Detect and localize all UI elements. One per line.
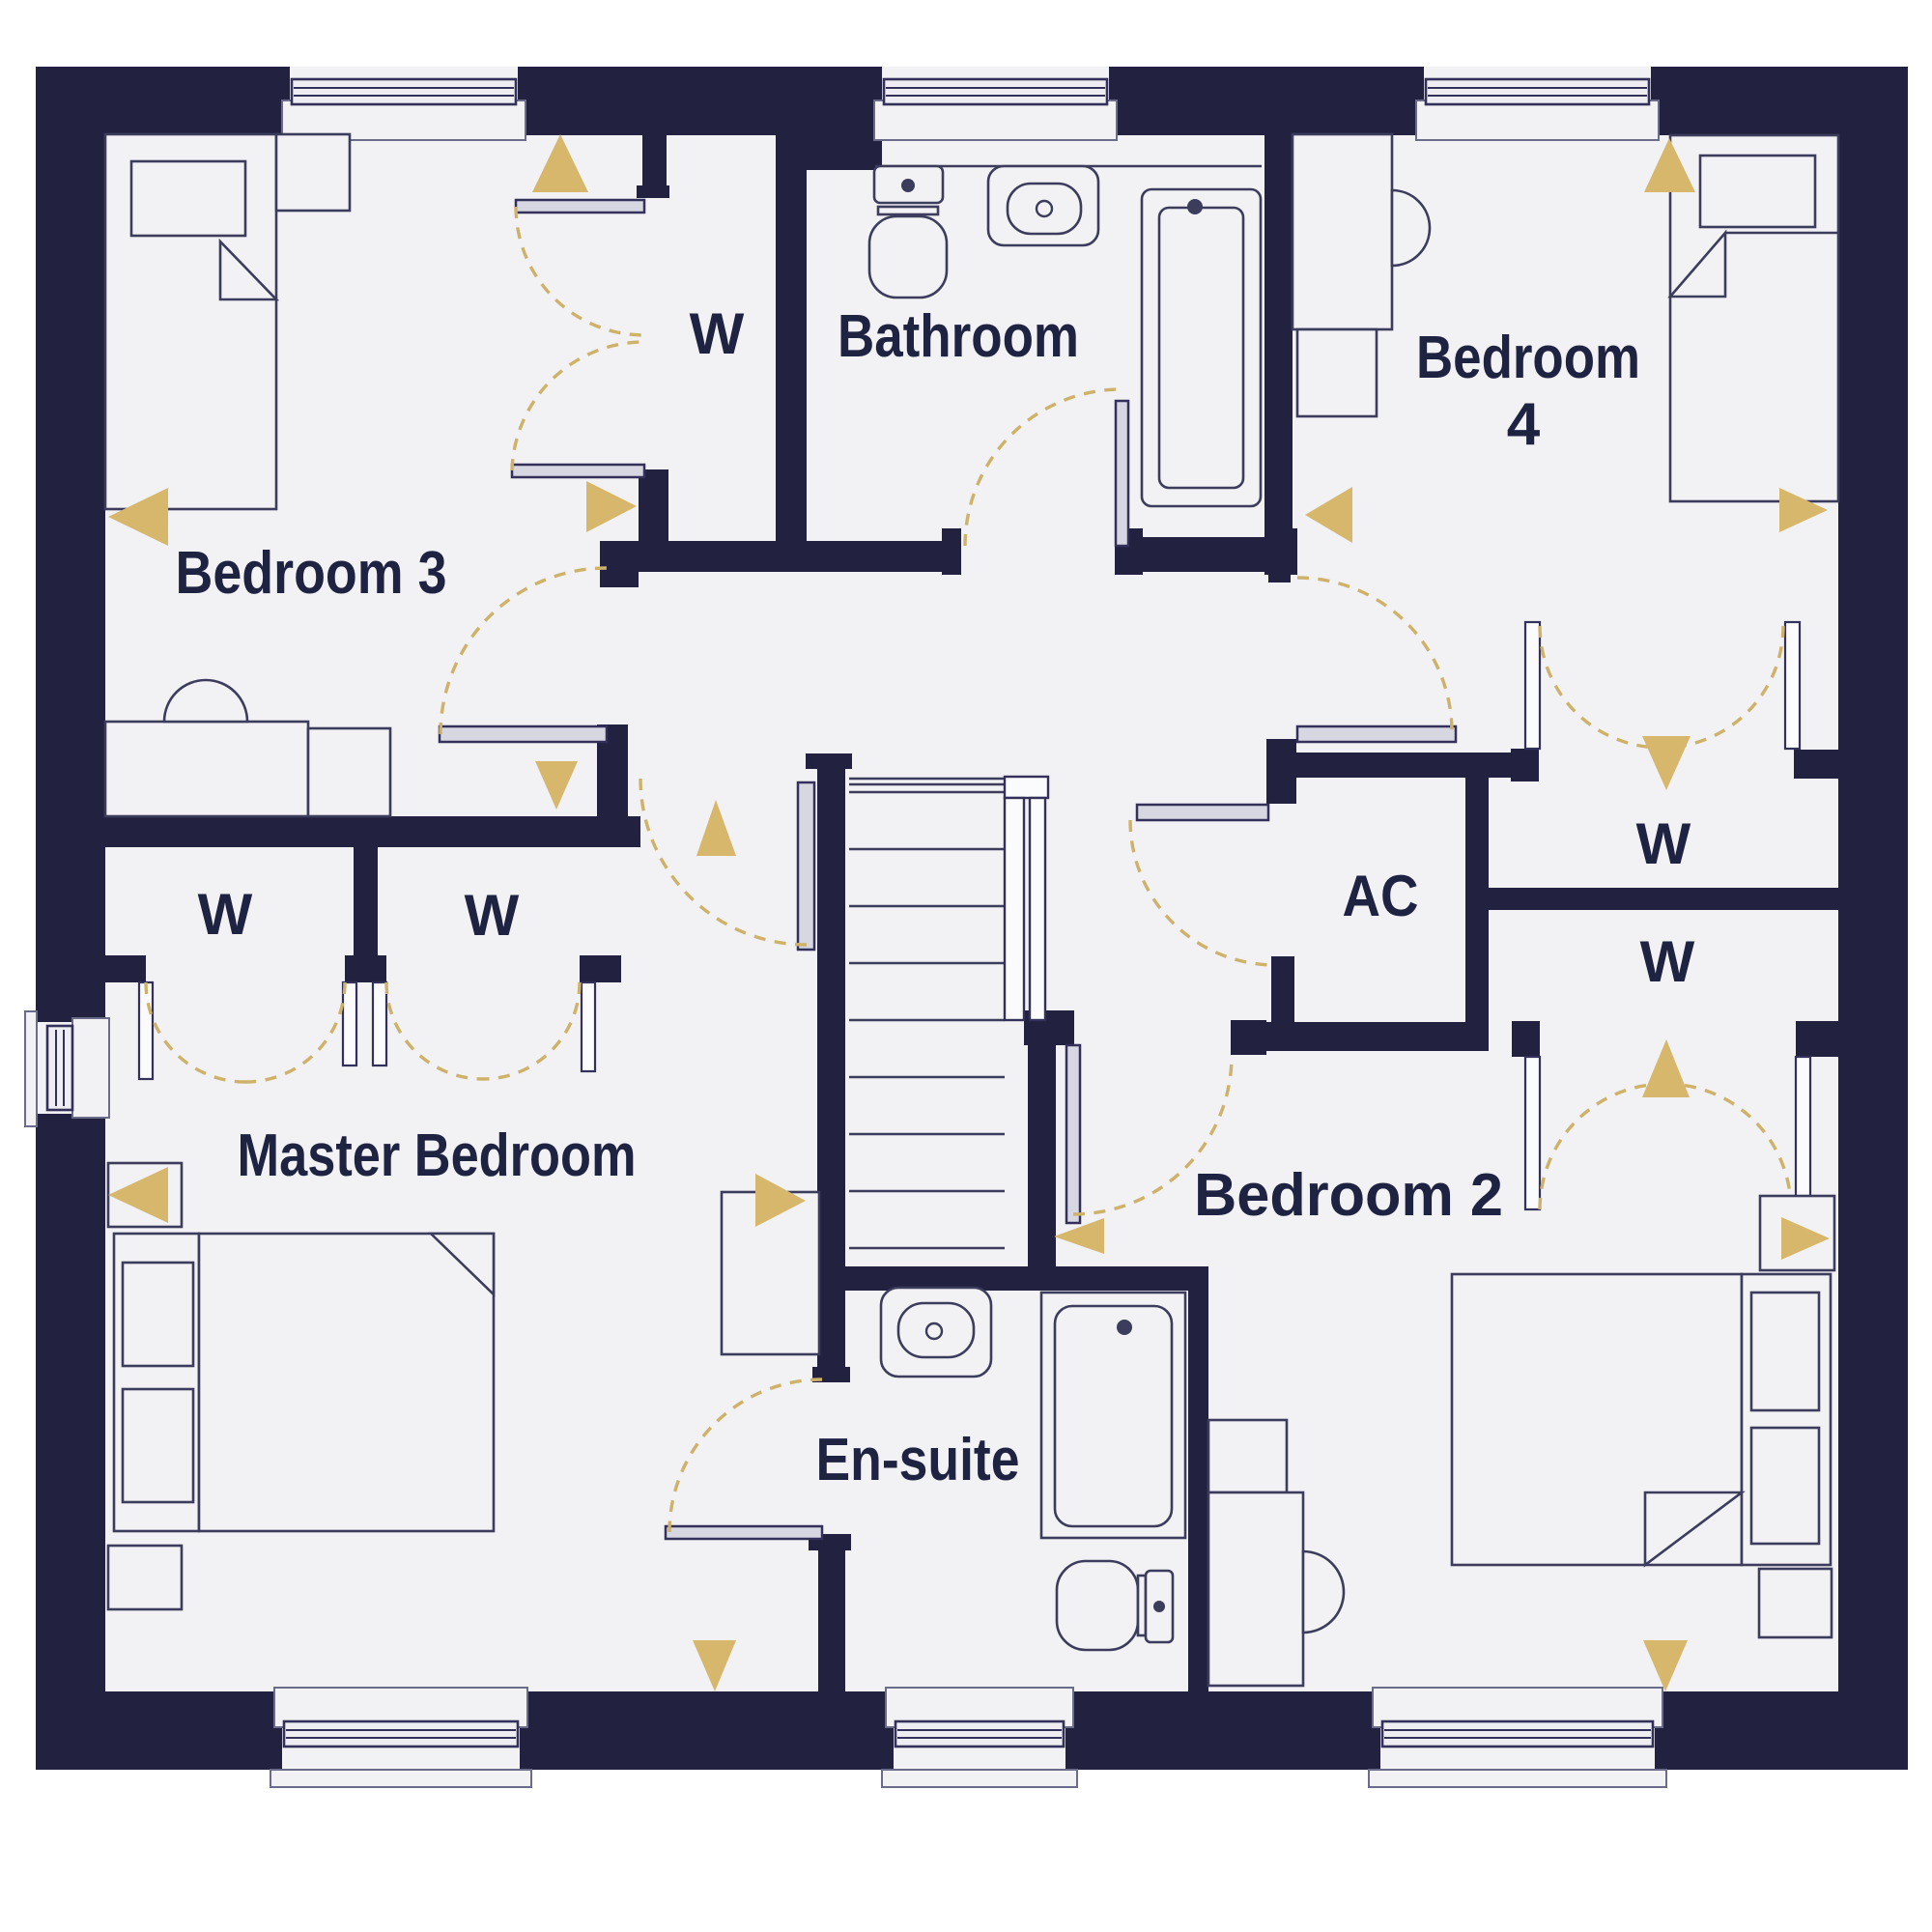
svg-text:Bedroom 3: Bedroom 3 [176,540,447,607]
svg-text:W: W [1636,811,1691,876]
svg-text:W: W [690,301,745,366]
svg-text:W: W [198,882,253,947]
svg-text:Bedroom 2: Bedroom 2 [1194,1162,1503,1229]
svg-text:Master Bedroom: Master Bedroom [238,1122,637,1189]
svg-text:AC: AC [1343,864,1419,928]
svg-text:Bedroom: Bedroom [1416,325,1640,391]
svg-text:W: W [465,883,520,948]
svg-text:W: W [1640,929,1695,994]
svg-text:En-suite: En-suite [816,1427,1020,1493]
svg-text:4: 4 [1507,391,1541,458]
svg-text:Bathroom: Bathroom [838,303,1079,370]
